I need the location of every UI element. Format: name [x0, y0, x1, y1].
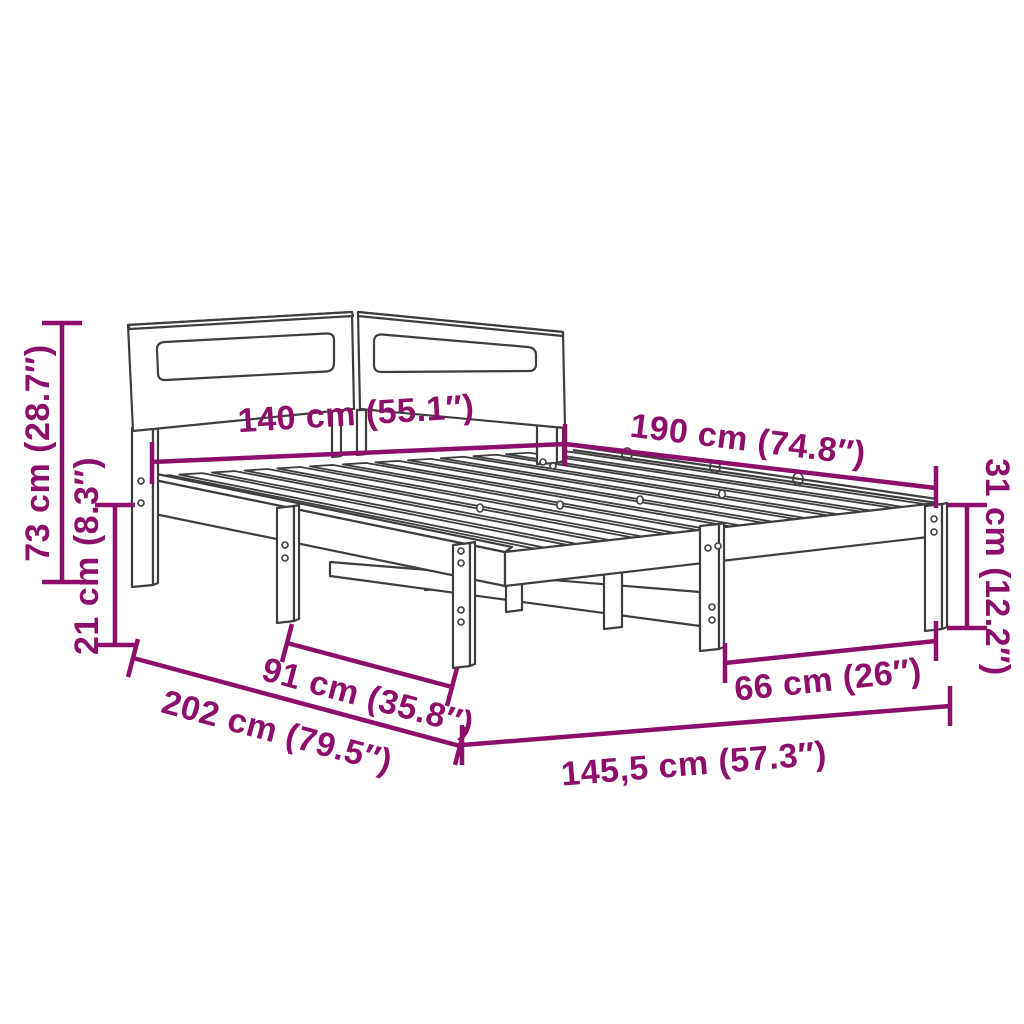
side-leg-1 [277, 505, 299, 623]
label-headboard-height: 73 cm (28.7″) [19, 344, 57, 561]
foot-leg-near [700, 523, 724, 651]
bed-drawing [128, 312, 947, 668]
label-frame-height: 31 cm (12.2″) [978, 458, 1016, 675]
label-total-width: 145,5 cm (57.3″) [560, 734, 828, 793]
diagram-stage: 140 cm (55.1″) 190 cm (74.8″) 73 cm (28.… [0, 0, 1024, 1024]
bed-dimension-diagram: 140 cm (55.1″) 190 cm (74.8″) 73 cm (28.… [0, 0, 1024, 1024]
label-clearance-height: 21 cm (8.3″) [68, 457, 106, 655]
headboard-left-cutout [157, 333, 334, 380]
foot-mid-leg [604, 568, 622, 629]
